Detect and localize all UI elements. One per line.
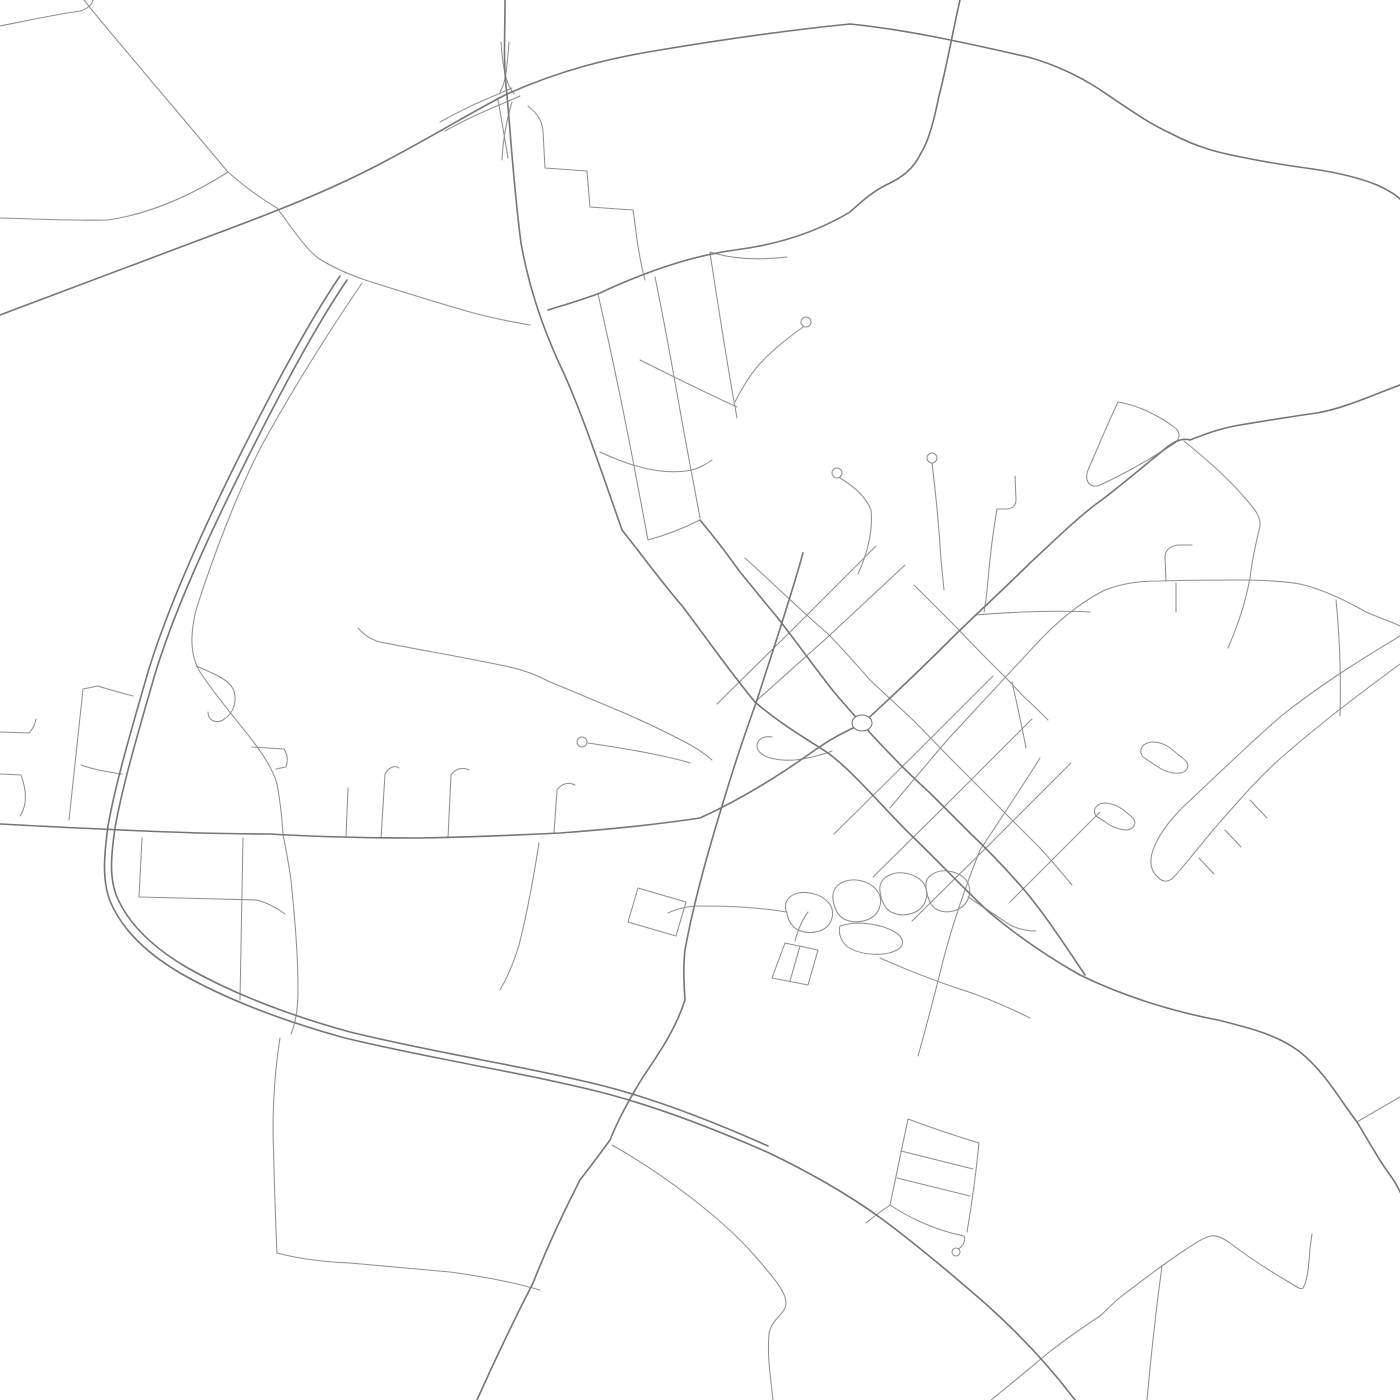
road-cross-st-se3 xyxy=(912,763,1071,921)
lollipop-1-head xyxy=(801,317,811,327)
road-cross-st-se2 xyxy=(873,719,1032,877)
road-ssw-line-2 xyxy=(918,758,1040,1056)
road-left-block-west xyxy=(69,686,98,820)
road-blob-1 xyxy=(785,892,832,932)
road-stub-556-hook xyxy=(557,783,575,790)
road-zigzag-se xyxy=(991,1234,1312,1400)
road-left-block-top xyxy=(98,686,133,696)
road-scarf-block xyxy=(628,888,686,936)
road-left-stub-1 xyxy=(0,719,36,733)
road-south-west-road xyxy=(477,553,803,1400)
road-staircase xyxy=(528,106,645,280)
roundabout xyxy=(852,715,872,731)
road-artery-se xyxy=(622,530,1400,1192)
road-ladder-bottom xyxy=(890,1205,965,1249)
road-arc-branch-south xyxy=(273,1038,540,1290)
road-north-curve-road xyxy=(548,0,960,310)
road-ladder-right xyxy=(967,1143,979,1232)
ladder-tail-head xyxy=(952,1248,960,1256)
road-ladder-left xyxy=(890,1119,908,1205)
road-left-block-mid xyxy=(81,765,122,774)
road-lollipop-3-stem xyxy=(932,463,944,590)
road-blob-5 xyxy=(839,923,902,954)
road-minigrid-rail-1 xyxy=(598,294,648,540)
road-blob-se-curve xyxy=(880,958,1030,1018)
road-bypass-arc xyxy=(105,276,1076,1400)
road-spur-252 xyxy=(710,252,787,259)
road-lollipop-1-stem xyxy=(735,327,803,402)
road-stub-450 xyxy=(448,775,451,838)
road-blob-4 xyxy=(926,871,970,912)
lollipop-2-head xyxy=(832,468,842,478)
road-ladder-rung-2 xyxy=(897,1178,970,1196)
road-flag-2-stem xyxy=(795,912,808,941)
road-connector-east xyxy=(975,611,1090,615)
road-topleft-diagonal xyxy=(84,0,228,172)
road-minigrid-crossbar-2 xyxy=(600,452,712,472)
road-triangle-se-line xyxy=(1184,441,1260,648)
road-j-stub xyxy=(1165,545,1192,581)
road-vert-1340 xyxy=(1336,600,1340,716)
road-below-539 xyxy=(500,843,539,990)
road-ew-highway xyxy=(0,24,1400,315)
road-left-horizontal xyxy=(0,172,228,220)
road-cross-st-nw1 xyxy=(755,565,905,702)
road-stub-387 xyxy=(381,774,385,838)
road-church-key-1 xyxy=(1141,742,1188,773)
road-ladder-rung-1 xyxy=(901,1151,973,1169)
road-below-142 xyxy=(139,838,142,897)
road-wavy-1 xyxy=(358,628,712,760)
road-highway-ns xyxy=(505,0,623,530)
road-minigrid-rail-3 xyxy=(710,253,737,418)
road-wavy-mid xyxy=(228,172,530,325)
poi-layer xyxy=(577,317,960,1256)
road-band-tooth-2 xyxy=(1225,830,1241,847)
wavy-2-head xyxy=(577,737,587,747)
street-map xyxy=(0,0,1400,1400)
road-wavy-2 xyxy=(588,743,690,763)
road-minigrid-crossbar-1 xyxy=(640,360,737,407)
road-stub-450-hook xyxy=(451,768,469,775)
road-below-crossbar xyxy=(139,897,285,914)
road-blob-2 xyxy=(833,880,881,922)
road-zigzag-branch xyxy=(1147,1266,1162,1400)
road-band-line-1 xyxy=(1151,636,1400,877)
road-bypass-arc-twin xyxy=(112,280,769,1146)
road-flag-2-mid xyxy=(790,946,800,981)
road-ladder-top xyxy=(908,1119,979,1143)
lollipop-3-head xyxy=(927,453,937,463)
road-blob-west-link xyxy=(668,906,786,913)
road-ladder-link xyxy=(866,1205,890,1223)
road-blob-3 xyxy=(880,873,927,915)
road-north-street xyxy=(745,558,1072,885)
road-stub-348 xyxy=(346,788,348,837)
road-west-east-road-ne-artery xyxy=(0,385,1400,838)
road-artery-ne-branch xyxy=(1357,1097,1400,1122)
road-cross-st-nw2 xyxy=(717,546,876,704)
map-canvas[interactable] xyxy=(0,0,1400,1400)
road-minigrid-link xyxy=(648,520,700,540)
road-lollipop-2-stem xyxy=(840,478,871,574)
road-band-tooth-3 xyxy=(1199,858,1214,874)
road-cross-st-se1 xyxy=(834,676,993,834)
road-band-tooth-1 xyxy=(1250,800,1267,818)
road-church-key-2 xyxy=(1094,803,1134,830)
road-stub-556 xyxy=(554,790,557,833)
road-band-line-2 xyxy=(1158,664,1400,881)
minor-roads-layer xyxy=(0,0,1400,1400)
major-roads-layer xyxy=(0,0,1400,1400)
road-below-243 xyxy=(240,838,243,1000)
road-nw-corner-stub xyxy=(0,0,93,26)
road-stub-387-hook xyxy=(385,767,399,774)
road-ssw-line xyxy=(192,283,362,1034)
road-left-stub-2 xyxy=(0,774,25,816)
road-bottom-curve xyxy=(612,1145,786,1400)
road-minigrid-rail-2 xyxy=(655,277,700,518)
road-triangle-loop xyxy=(1087,402,1179,486)
